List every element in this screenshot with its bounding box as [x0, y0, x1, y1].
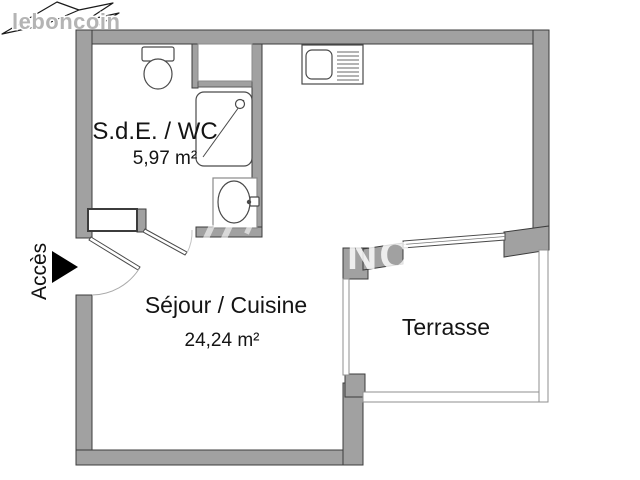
wall-left-upper [76, 30, 92, 238]
railing-right [539, 250, 548, 402]
leboncoin-logo: leboncoin [2, 2, 120, 34]
washbasin-faucet [250, 197, 259, 206]
washbasin-drain [247, 200, 251, 204]
window-box [88, 209, 137, 231]
bathroom-door [143, 229, 192, 255]
bathroom-door-arc [187, 230, 192, 253]
room-name-terrasse: Terrasse [402, 314, 490, 340]
entrance-door [89, 237, 140, 295]
entrance-door-leaf [89, 237, 140, 270]
shower-head-icon [236, 100, 245, 109]
closet-niche [198, 44, 252, 81]
floor-plan-page: leboncoin [0, 0, 640, 480]
wall-terrace-stub-bottomleft [345, 374, 365, 397]
room-name-sde-wc: S.d.E. / WC [92, 118, 217, 145]
room-area-sejour-cuisine: 24,24 m² [185, 330, 260, 351]
railing-left [343, 279, 349, 375]
room-name-sejour-cuisine: Séjour / Cuisine [145, 292, 307, 318]
wall-bath-partition [192, 44, 198, 88]
washbasin [213, 178, 259, 228]
railing-bottom [363, 392, 548, 402]
washbasin-bowl [218, 181, 250, 223]
kitchen-sink [302, 45, 363, 84]
entrance-door-arc [92, 269, 139, 295]
kitchen-sink-basin [306, 50, 332, 79]
watermark-text: NC [347, 231, 412, 278]
wall-right [533, 30, 549, 231]
access-indicator: Accès [28, 243, 78, 300]
wall-entry-pier [137, 209, 146, 232]
access-label: Accès [28, 243, 51, 300]
access-arrow-icon [52, 251, 78, 283]
room-area-sde-wc: 5,97 m² [133, 148, 197, 169]
sliding-bay-window [403, 233, 505, 248]
bathroom-door-leaf [143, 229, 187, 255]
wall-left-lower [76, 295, 92, 465]
toilet-bowl [144, 59, 172, 89]
wall-top [76, 30, 549, 44]
toilet [142, 47, 174, 89]
floor-plan: leboncoin [0, 0, 640, 480]
wall-bottom [76, 450, 363, 465]
wall-niche-sill [198, 81, 252, 87]
